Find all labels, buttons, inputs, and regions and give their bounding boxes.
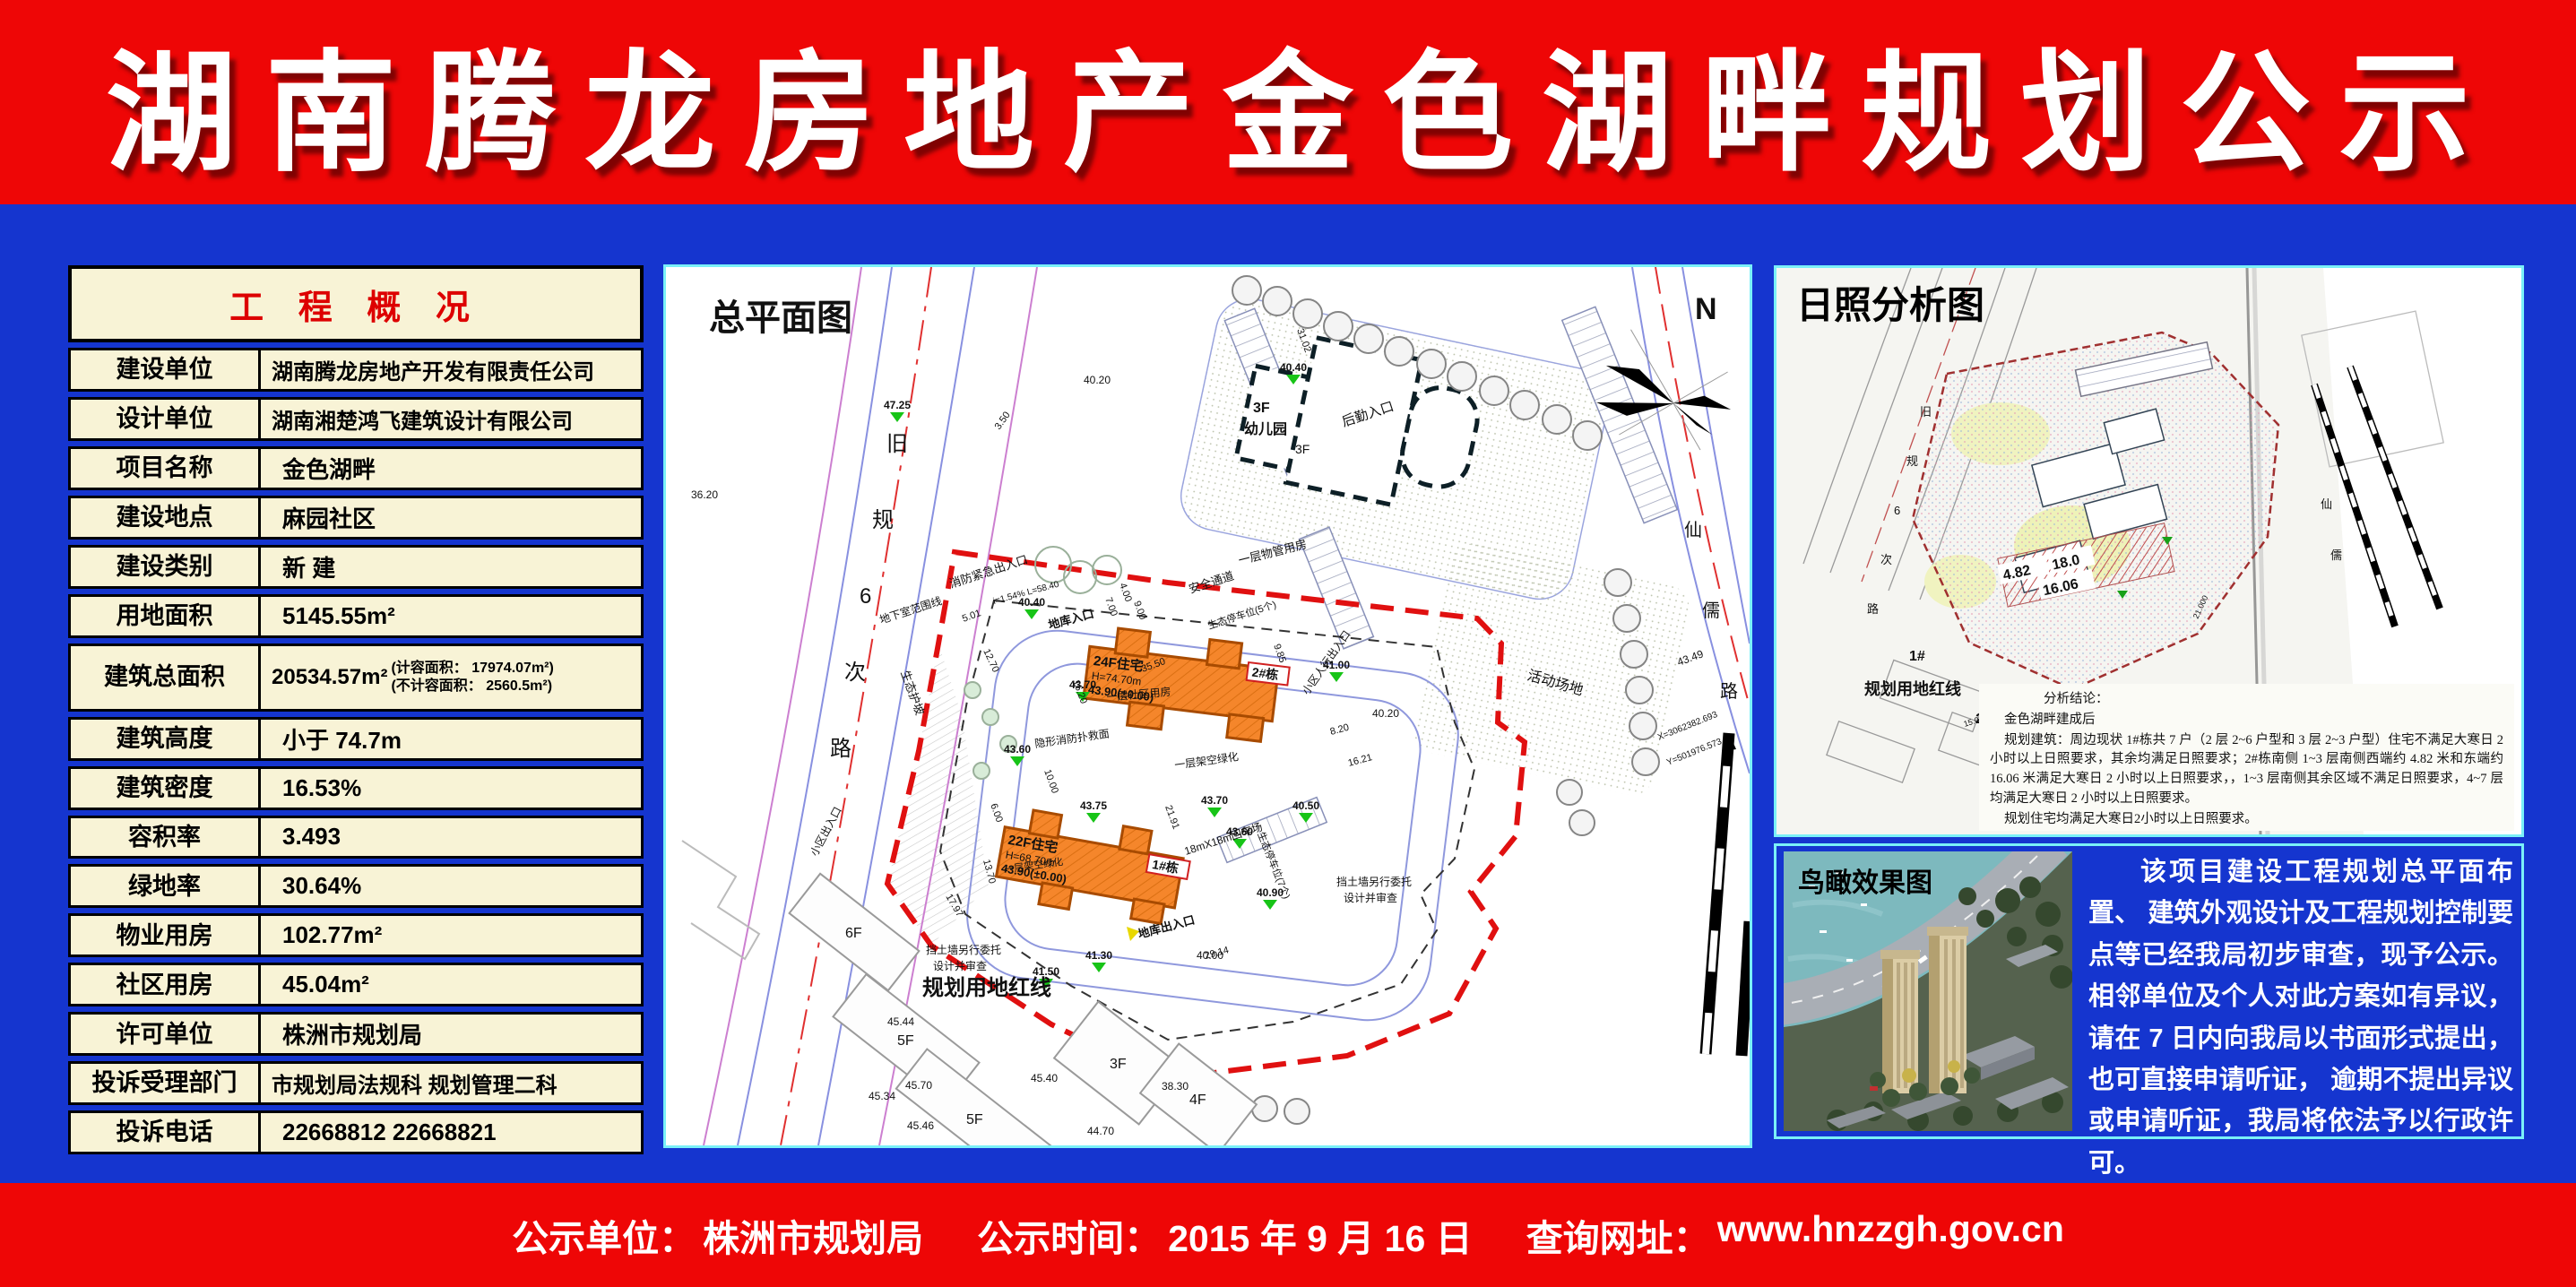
row-value: 45.04m²	[261, 965, 641, 1004]
row-value: 株洲市规划局	[261, 1015, 641, 1053]
row-label: 容积率	[71, 818, 261, 857]
svg-text:40.20: 40.20	[1372, 707, 1399, 720]
row-label: 用地面积	[71, 597, 261, 635]
notice-body: 该项目建设工程规划总平面布置、 建筑外观设计及工程规划控制要点等已经我局初步审查…	[2088, 851, 2513, 1184]
analysis-conclusion-box: 分析结论： 金色湖畔建成后 规划建筑：周边现状 1#栋共 7 户（2 层 2~6…	[1979, 684, 2514, 831]
planning-notice-poster: 湖南腾龙房地产金色湖畔规划公示 工 程 概 况 建设单位湖南腾龙房地产开发有限责…	[0, 0, 2576, 1287]
svg-text:40.20: 40.20	[1084, 374, 1111, 386]
row-label: 投诉受理部门	[71, 1064, 261, 1102]
retaining-wall-label-b2: 设计并审查	[933, 959, 987, 972]
svg-text:45.70: 45.70	[905, 1079, 932, 1092]
table-row: 设计单位湖南湘楚鸿飞建筑设计有限公司	[68, 397, 644, 441]
table-row: 建设单位湖南腾龙房地产开发有限责任公司	[68, 348, 644, 392]
birdseye-photo: 鸟瞰效果图	[1784, 851, 2072, 1131]
master-plan-panel: 总平面图 旧 规	[663, 264, 1752, 1148]
svg-text:41.30: 41.30	[1085, 949, 1112, 962]
svg-text:5F: 5F	[897, 1033, 914, 1049]
row-value: 新 建	[261, 548, 641, 586]
table-row: 许可单位株洲市规划局	[68, 1012, 644, 1056]
svg-text:路: 路	[830, 737, 851, 761]
road-name-right: 仙 儒 路	[1684, 520, 1738, 702]
kindergarten-name-label: 幼儿园	[1244, 420, 1287, 437]
table-row: 建筑密度16.53%	[68, 766, 644, 810]
svg-text:路: 路	[1867, 602, 1879, 616]
table-row: 项目名称金色湖畔	[68, 446, 644, 490]
svg-text:1#: 1#	[1909, 649, 1925, 664]
row-value: 102.77m²	[261, 916, 641, 954]
building-2: 24F住宅 H=74.70m 43.90(±0.00) 2#栋	[1081, 626, 1292, 745]
svg-text:6: 6	[1894, 504, 1900, 517]
svg-text:4F: 4F	[1189, 1093, 1206, 1108]
svg-text:9.00: 9.00	[1131, 600, 1148, 621]
svg-text:43.70: 43.70	[1201, 794, 1228, 807]
conclusion-last: 规划住宅均满足大寒日2小时以上日照要求。	[1990, 810, 2503, 830]
garage-in-label: 地库入口	[1047, 607, 1095, 632]
row-value: 5145.55m²	[261, 597, 641, 635]
eco-parking5-label: 生态停车位(5个)	[1206, 598, 1278, 632]
row-value: 3.493	[261, 818, 641, 857]
row-label: 绿地率	[71, 867, 261, 905]
svg-text:21.91: 21.91	[1163, 804, 1181, 831]
project-overview-table: 工 程 概 况 建设单位湖南腾龙房地产开发有限责任公司 设计单位湖南湘楚鸿飞建筑…	[68, 265, 644, 1154]
svg-text:9.85: 9.85	[1271, 643, 1288, 664]
footer-unit: 公示单位：株洲市规划局	[512, 1208, 923, 1262]
table-row: 投诉电话22668812 22668821	[68, 1110, 644, 1154]
svg-text:10.00: 10.00	[1042, 768, 1060, 795]
svg-text:43.60: 43.60	[1004, 743, 1031, 756]
row-label: 项目名称	[71, 449, 261, 488]
svg-text:规: 规	[872, 508, 894, 532]
row-label: 投诉电话	[71, 1113, 261, 1152]
footer-website: 查询网址：www.hnzzgh.gov.cn	[1526, 1208, 2064, 1262]
svg-text:次: 次	[844, 661, 866, 685]
conclusion-title: 分析结论：	[1990, 690, 2503, 710]
row-value: 小于 74.7m	[261, 720, 641, 758]
total-area-main: 20534.57m²	[272, 665, 387, 690]
row-label: 建设地点	[71, 498, 261, 537]
table-row: 社区用房45.04m²	[68, 963, 644, 1006]
svg-text:7.00: 7.00	[1102, 596, 1119, 618]
kindergarten-floor-label: 3F	[1253, 401, 1270, 416]
svg-text:路: 路	[1720, 681, 1738, 702]
svg-text:47.25: 47.25	[884, 399, 911, 411]
sun-red-line-label: 规划用地红线	[1864, 679, 1961, 698]
railway-bars	[1706, 733, 1750, 1056]
svg-text:5F: 5F	[966, 1112, 983, 1127]
area-note-1: (计容面积： 17974.07m²)	[391, 660, 553, 677]
table-row: 建设地点麻园社区	[68, 496, 644, 540]
table-row: 物业用房102.77m²	[68, 913, 644, 957]
svg-text:38.30: 38.30	[1162, 1080, 1189, 1093]
row-value: 湖南腾龙房地产开发有限责任公司	[261, 350, 641, 389]
row-value: 湖南湘楚鸿飞建筑设计有限公司	[261, 400, 641, 438]
plan-title: 总平面图	[709, 298, 852, 338]
conclusion-sub: 金色湖畔建成后	[1990, 711, 2503, 730]
svg-text:5.01: 5.01	[961, 608, 982, 625]
svg-text:仙: 仙	[1684, 520, 1702, 540]
svg-text:旧: 旧	[1920, 405, 1932, 419]
safety-channel-label: 安全通道	[1187, 569, 1235, 596]
banner: 湖南腾龙房地产金色湖畔规划公示	[0, 0, 2576, 204]
svg-text:45.44: 45.44	[887, 1015, 914, 1028]
row-label: 许可单位	[71, 1015, 261, 1053]
table-title: 工 程 概 况	[68, 265, 644, 342]
svg-text:6.00: 6.00	[988, 802, 1005, 824]
row-value: 16.53%	[261, 769, 641, 808]
red-line-label: 规划用地红线	[922, 975, 1051, 1000]
svg-text:儒: 儒	[2330, 548, 2342, 562]
area-note-2: (不计容面积： 2560.5m²)	[391, 678, 553, 695]
north-label: N	[1695, 292, 1717, 326]
svg-text:36.20: 36.20	[691, 488, 718, 501]
row-label: 建筑高度	[71, 720, 261, 758]
table-row-total-area: 建筑总面积 20534.57m² (计容面积： 17974.07m²) (不计容…	[68, 643, 644, 712]
row-value: 麻园社区	[261, 498, 641, 537]
total-area-notes: (计容面积： 17974.07m²) (不计容面积： 2560.5m²)	[391, 660, 553, 694]
row-label: 建设单位	[71, 350, 261, 389]
row-label: 物业用房	[71, 916, 261, 954]
svg-text:8.20: 8.20	[1329, 722, 1351, 738]
row-value: 30.64%	[261, 867, 641, 905]
row-label: 社区用房	[71, 965, 261, 1004]
svg-text:6: 6	[860, 584, 871, 609]
fire-surface-label: 隐形消防扑救面	[1033, 726, 1110, 750]
svg-text:40.50: 40.50	[1292, 799, 1319, 812]
tower-2	[1927, 927, 1968, 1093]
svg-text:40.40: 40.40	[1280, 361, 1307, 374]
retaining-wall-label-r2: 设计并审查	[1344, 891, 1397, 904]
conclusion-body: 规划建筑：周边现状 1#栋共 7 户（2 层 2~6 户型和 3 层 2~3 户…	[1990, 731, 2503, 809]
footer-date: 公示时间：2015 年 9 月 16 日	[977, 1208, 1473, 1262]
svg-text:44.70: 44.70	[1087, 1125, 1114, 1137]
svg-text:旧: 旧	[886, 432, 908, 456]
svg-text:43.75: 43.75	[1080, 799, 1107, 812]
svg-text:儒: 儒	[1702, 600, 1720, 621]
retaining-wall-label-r1: 挡土墙另行委托	[1336, 876, 1412, 888]
row-label: 建筑密度	[71, 769, 261, 808]
table-row: 建设类别新 建	[68, 545, 644, 589]
svg-text:4.00: 4.00	[1117, 582, 1134, 603]
svg-text:6F: 6F	[845, 926, 862, 941]
stilt-green-label: 一层架空绿化	[1173, 749, 1239, 772]
master-plan-drawing: 总平面图 旧 规	[666, 267, 1750, 1145]
svg-text:仙: 仙	[2321, 497, 2332, 511]
footer: 公示单位：株洲市规划局 公示时间：2015 年 9 月 16 日 查询网址：ww…	[0, 1183, 2576, 1287]
svg-text:12.70: 12.70	[981, 647, 1001, 674]
row-value: 金色湖畔	[261, 449, 641, 488]
svg-text:45.40: 45.40	[1031, 1072, 1058, 1084]
svg-text:次: 次	[1880, 553, 1892, 566]
row-label: 建筑总面积	[71, 646, 261, 709]
table-row: 投诉受理部门市规划局法规科 规划管理二科	[68, 1061, 644, 1105]
table-row: 用地面积5145.55m²	[68, 594, 644, 638]
table-row: 绿地率30.64%	[68, 864, 644, 908]
birdseye-notice-section: 鸟瞰效果图 该项目建设工程规划总平面布置、 建筑外观设计及工程规划控制要点等已经…	[1774, 843, 2524, 1139]
row-value: 22668812 22668821	[261, 1113, 641, 1152]
row-value: 市规划局法规科 规划管理二科	[261, 1064, 641, 1102]
sunshine-analysis-panel: 日照分析图 旧 规 6 次 路	[1774, 265, 2524, 837]
kindergarten-floor2-label: 3F	[1295, 442, 1310, 456]
retaining-wall-label-b1: 挡土墙另行委托	[926, 944, 1001, 956]
poster-title: 湖南腾龙房地产金色湖畔规划公示	[77, 8, 2499, 197]
sunshine-title: 日照分析图	[1796, 275, 1984, 330]
row-label: 建设类别	[71, 548, 261, 586]
birdseye-label: 鸟瞰效果图	[1798, 860, 1932, 900]
svg-text:45.46: 45.46	[907, 1119, 934, 1132]
basement-line-label: 地下室范围线	[877, 593, 943, 626]
svg-text:16.21: 16.21	[1347, 752, 1374, 769]
svg-text:45.34: 45.34	[869, 1090, 895, 1102]
svg-text:3F: 3F	[1110, 1057, 1127, 1072]
road-name-left: 旧 规 6 次 路	[830, 432, 908, 761]
district-entrance-label: 小区出入口	[808, 805, 844, 859]
table-row: 容积率3.493	[68, 816, 644, 859]
table-row: 建筑高度小于 74.7m	[68, 717, 644, 761]
coord-y-label: Y=501976.573	[1665, 737, 1724, 768]
row-label: 设计单位	[71, 400, 261, 438]
svg-text:规: 规	[1906, 454, 1918, 468]
row-value: 20534.57m² (计容面积： 17974.07m²) (不计容面积： 25…	[261, 646, 641, 709]
